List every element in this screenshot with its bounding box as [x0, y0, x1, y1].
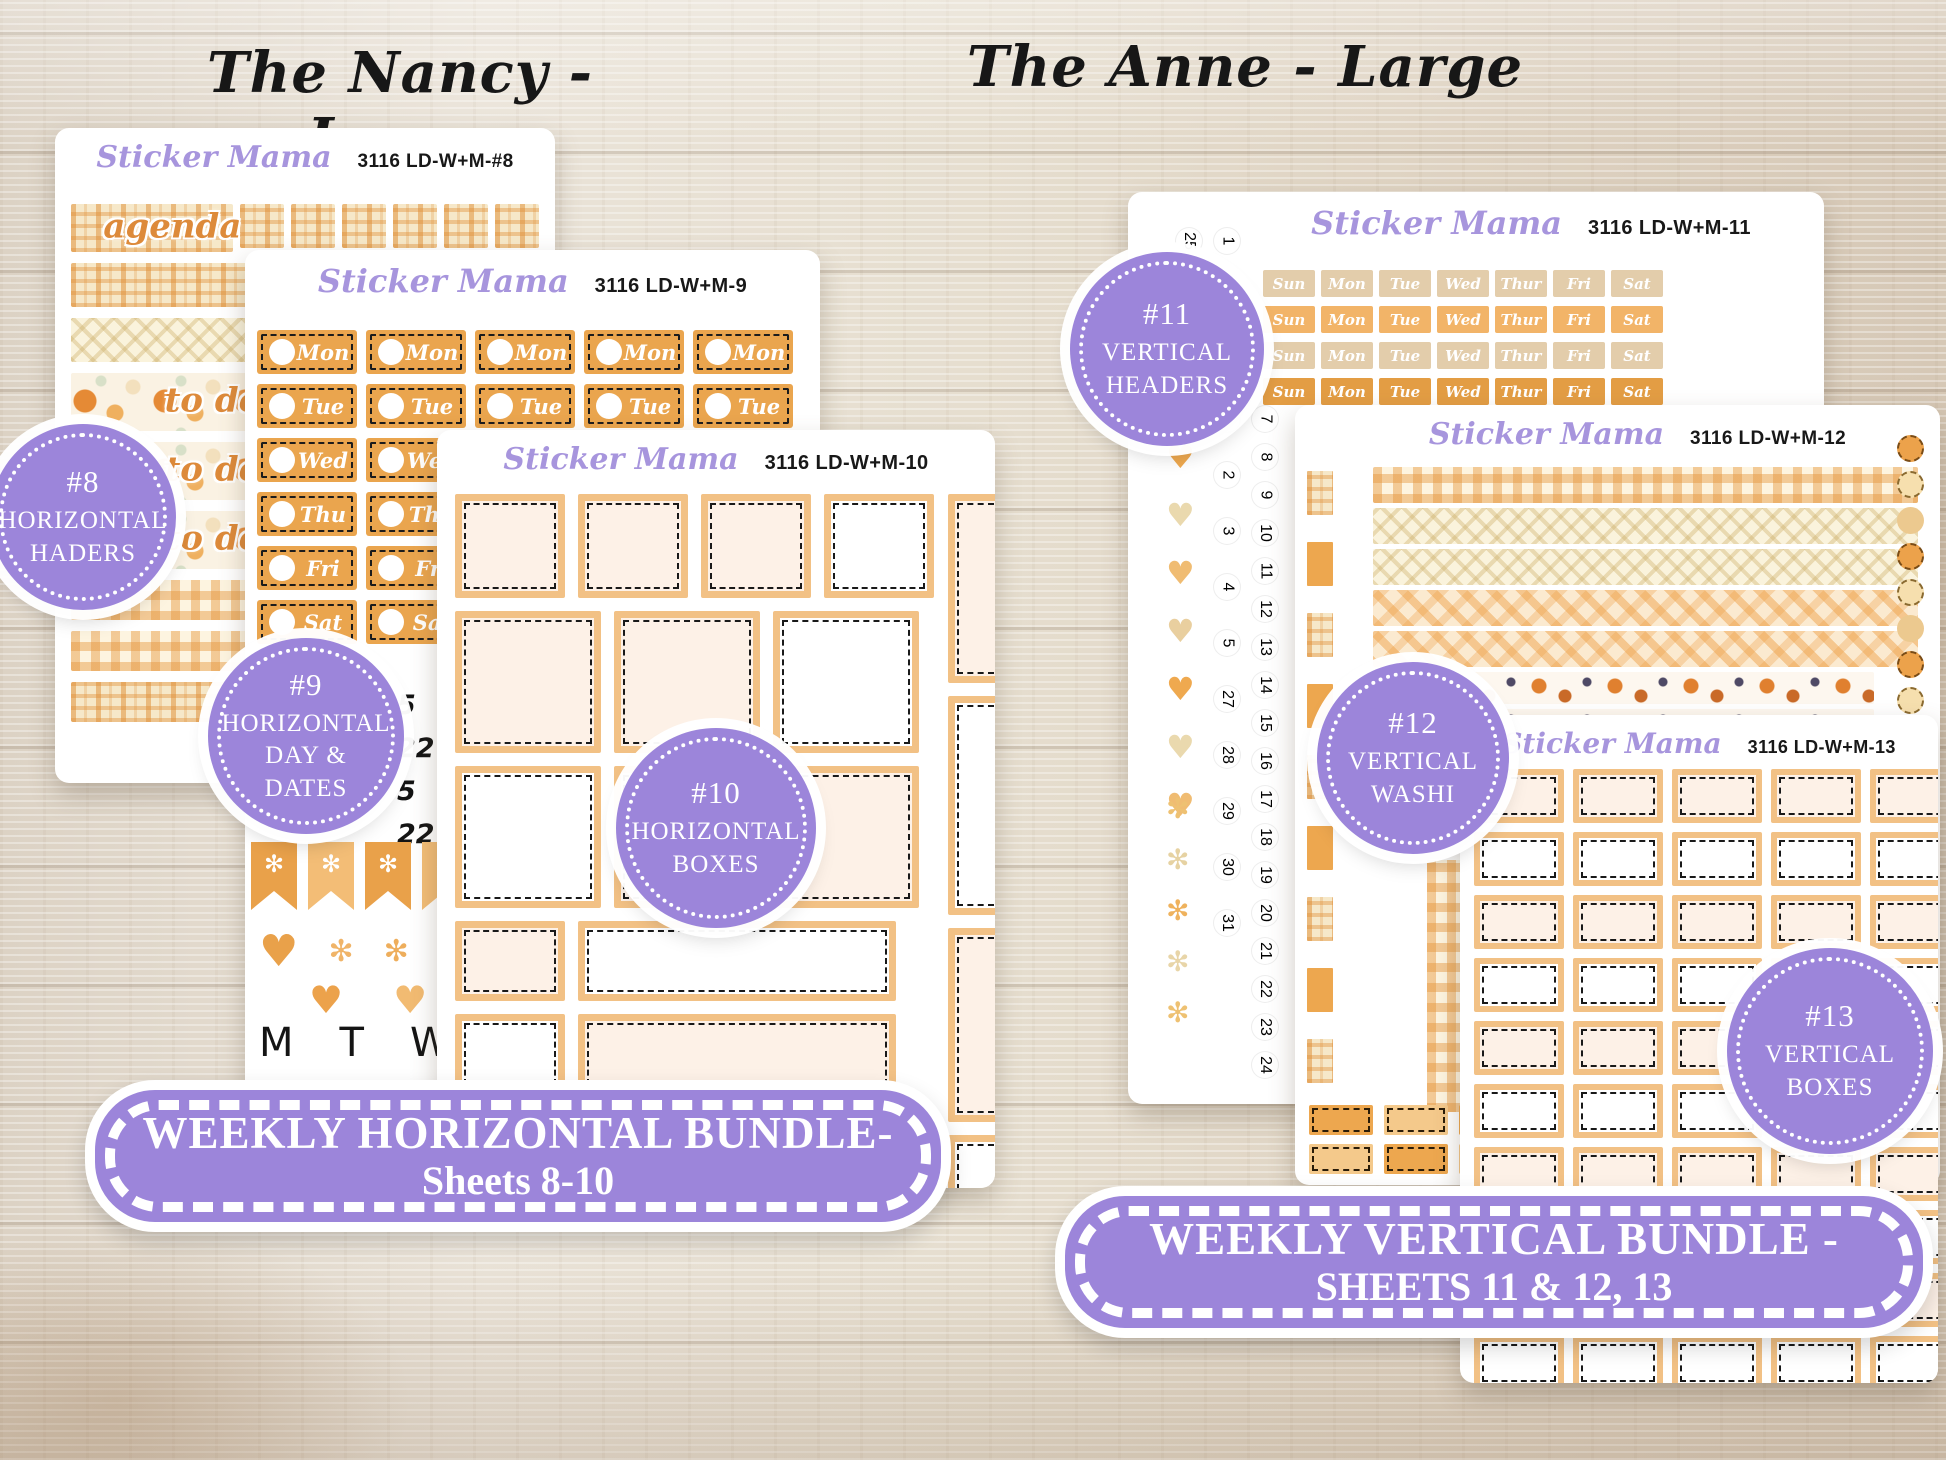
- day-label: Tue: [513, 394, 575, 419]
- planner-box: [578, 921, 896, 1001]
- date-number: 22: [1256, 980, 1274, 998]
- date-dot: 23: [1252, 1014, 1278, 1040]
- badge-13-vertical-boxes: #13 VERTICAL BOXES: [1727, 948, 1933, 1154]
- banner-subtitle: Sheets 8-10: [143, 1159, 894, 1204]
- flower-sticker-column: ✻✻✻✻✻: [1166, 792, 1189, 1029]
- date-number: 12: [1256, 600, 1274, 618]
- sheet-code: 3116 LD-W+M-10: [765, 452, 929, 475]
- banner-weekly-vertical-bundle: WEEKLY VERTICAL BUNDLE - SHEETS 11 & 12,…: [1055, 1186, 1933, 1338]
- decor-circle: [596, 339, 622, 365]
- day-tag: Tue: [475, 384, 575, 428]
- heart-icon: ♥: [259, 926, 298, 977]
- planner-box: [1573, 832, 1663, 886]
- weekday-letter: M: [259, 1020, 294, 1066]
- pennant-flag: ✻: [365, 842, 411, 910]
- planner-box: [1474, 832, 1564, 886]
- decor-circle: [705, 339, 731, 365]
- day-header-tag: Wed: [1437, 378, 1489, 405]
- planner-box: [455, 494, 565, 598]
- planner-box: [1573, 895, 1663, 949]
- washi-strip: [1373, 508, 1918, 544]
- sheet-code: 3116 LD-W+M-9: [595, 275, 747, 298]
- day-header-tag: Thur: [1495, 378, 1547, 405]
- day-header-tag: Sat: [1611, 378, 1663, 405]
- day-tag: Thu: [257, 492, 357, 536]
- decor-circle: [269, 393, 295, 419]
- box-row: [1474, 1336, 1938, 1383]
- collection-title-right: The Anne - Large: [955, 34, 1535, 100]
- badge-12-vertical-washi: #12 VERTICAL WASHI: [1317, 662, 1509, 854]
- day-header-tag: Tue: [1379, 342, 1431, 369]
- cookie-sticker: [1897, 687, 1924, 714]
- decor-circle: [487, 393, 513, 419]
- heart-icon: ♥: [1166, 496, 1195, 534]
- heart-flower-stickers: ♥✻✻✻: [259, 926, 464, 977]
- date-dot: 15: [1252, 710, 1278, 736]
- date-number: 2: [1218, 471, 1236, 480]
- date-dot: 10: [1252, 520, 1278, 546]
- planner-box: [1474, 895, 1564, 949]
- day-label: Mon: [513, 340, 575, 365]
- badge-number: #12: [1388, 705, 1438, 741]
- badge-label: VERTICAL: [1348, 746, 1478, 779]
- decor-circle: [596, 393, 622, 419]
- date-dot: 19: [1252, 862, 1278, 888]
- date-number: 29: [1218, 802, 1236, 820]
- date-number: 19: [1256, 866, 1274, 884]
- planner-box: [1474, 1021, 1564, 1075]
- date-number: 28: [1218, 746, 1236, 764]
- day-header-tag: Sun: [1263, 270, 1315, 297]
- planner-box: [1573, 769, 1663, 823]
- day-header-tag: Sat: [1611, 270, 1663, 297]
- date-number: 15: [1256, 714, 1274, 732]
- sheet-code: 3116 LD-W+M-#8: [358, 151, 514, 173]
- washi-sample: [1307, 968, 1333, 1012]
- heart-icon: ♥: [1166, 670, 1195, 708]
- planner-box: [1870, 769, 1938, 823]
- date-dot: 11: [1252, 558, 1278, 584]
- washi-square: [444, 204, 488, 248]
- date-dot: 31: [1214, 910, 1240, 936]
- flower-icon: ✻: [1166, 843, 1189, 876]
- date-number: 21: [1256, 942, 1274, 960]
- heart-icon: ♥: [1166, 728, 1195, 766]
- planner-box: [773, 611, 919, 753]
- vertical-day-header-grid: SunMonTueWedThurFriSatSunMonTueWedThurFr…: [1263, 270, 1663, 405]
- day-header-tag: Fri: [1553, 270, 1605, 297]
- washi-strip: [1373, 631, 1918, 667]
- date-number: 10: [1256, 524, 1274, 542]
- planner-box: [1474, 958, 1564, 1012]
- day-tag: Mon: [257, 330, 357, 374]
- date-dot: 16: [1252, 748, 1278, 774]
- planner-box: [1573, 1084, 1663, 1138]
- flower-icon: ✻: [328, 934, 353, 969]
- washi-square: [291, 204, 335, 248]
- brand-logo: Sticker Mama: [318, 262, 569, 300]
- cookie-sticker: [1897, 651, 1924, 678]
- date-number: 11: [1256, 563, 1274, 580]
- date-number: 24: [1256, 1056, 1274, 1074]
- badge-label: DATES: [265, 773, 348, 806]
- planner-box: [1474, 1084, 1564, 1138]
- badge-number: #13: [1805, 998, 1855, 1034]
- heart-icon: ♥: [309, 978, 343, 1022]
- date-number: 5: [397, 776, 435, 807]
- day-tag: Wed: [257, 438, 357, 482]
- planner-box: [1672, 832, 1762, 886]
- date-dot: 24: [1252, 1052, 1278, 1078]
- decor-circle: [705, 393, 731, 419]
- day-tag: Tue: [257, 384, 357, 428]
- badge-9-horizontal-day-dates: #9 HORIZONTAL DAY & DATES: [208, 638, 404, 834]
- day-header-tag: Tue: [1379, 270, 1431, 297]
- date-number: 17: [1256, 790, 1274, 808]
- washi-word-label: agenda: [103, 206, 241, 246]
- day-header-tag: Thur: [1495, 342, 1547, 369]
- badge-label: WASHI: [1371, 779, 1455, 812]
- date-number: 31: [1218, 914, 1236, 932]
- washi-strip: [1373, 590, 1918, 626]
- flower-icon: ✻: [1166, 792, 1189, 825]
- box-column: [948, 494, 995, 1188]
- heart-icon: ♥: [1166, 554, 1195, 592]
- date-number: 18: [1256, 828, 1274, 846]
- day-header-tag: Thur: [1495, 270, 1547, 297]
- day-label: Mon: [404, 340, 466, 365]
- sheet-code: 3116 LD-W+M-11: [1588, 217, 1751, 240]
- date-dot: 20: [1252, 900, 1278, 926]
- decor-circle: [269, 501, 295, 527]
- decor-circle: [378, 501, 404, 527]
- decor-circle: [378, 339, 404, 365]
- cookie-sticker: [1897, 543, 1924, 570]
- decor-circle: [378, 393, 404, 419]
- badge-label: DAY &: [265, 740, 347, 773]
- washi-square: [393, 204, 437, 248]
- badge-number: #8: [67, 464, 100, 500]
- box-row: [455, 494, 934, 598]
- cookie-sticker: [1897, 579, 1924, 606]
- cookie-sticker: [1897, 615, 1924, 642]
- brand-logo: Sticker Mama: [1311, 204, 1562, 242]
- planner-box: [1771, 1336, 1861, 1383]
- day-tag: Mon: [693, 330, 793, 374]
- date-dot: 28: [1214, 742, 1240, 768]
- decor-circle: [269, 339, 295, 365]
- day-header-row: SunMonTueWedThurFriSat: [1263, 306, 1663, 333]
- date-number: 9: [1256, 491, 1274, 500]
- date-number: 27: [1218, 690, 1236, 708]
- day-label: Mon: [295, 340, 357, 365]
- day-label: Wed: [295, 448, 357, 473]
- cookie-dot-column: [1897, 435, 1924, 714]
- planner-box: [948, 928, 995, 1122]
- brand-logo: Sticker Mama: [96, 140, 331, 175]
- badge-label: HORIZONTAL: [0, 505, 168, 538]
- day-header-tag: Sun: [1263, 378, 1315, 405]
- badge-11-vertical-headers: #11 VERTICAL HEADERS: [1070, 252, 1264, 446]
- planner-box: [1573, 1021, 1663, 1075]
- pennant-flag: ✻: [251, 842, 297, 910]
- planner-box: [948, 1135, 995, 1188]
- badge-label: BOXES: [1787, 1072, 1874, 1105]
- banner-subtitle: SHEETS 11 & 12, 13: [1149, 1265, 1839, 1310]
- day-header-tag: Tue: [1379, 306, 1431, 333]
- date-dot: 21: [1252, 938, 1278, 964]
- day-label: Sat: [295, 610, 357, 635]
- day-label: Tue: [404, 394, 466, 419]
- day-tag: Fri: [257, 546, 357, 590]
- planner-box: [1573, 1336, 1663, 1383]
- banner-title: WEEKLY VERTICAL BUNDLE -: [1149, 1214, 1839, 1264]
- box-row: [1474, 769, 1938, 823]
- mini-box: [1309, 1105, 1373, 1135]
- date-number: 7: [1256, 415, 1274, 424]
- flower-icon: ✻: [1166, 894, 1189, 927]
- date-number: 16: [1256, 752, 1274, 770]
- planner-box: [578, 494, 688, 598]
- planner-box: [455, 611, 601, 753]
- date-dot: 14: [1252, 672, 1278, 698]
- day-label: Mon: [622, 340, 684, 365]
- day-header-tag: Wed: [1437, 342, 1489, 369]
- washi-strip: [1373, 549, 1918, 585]
- day-tag: Mon: [584, 330, 684, 374]
- planner-box: [1672, 769, 1762, 823]
- flower-icon: ✻: [384, 934, 409, 969]
- day-header-row: SunMonTueWedThurFriSat: [1263, 378, 1663, 405]
- day-header-tag: Mon: [1321, 270, 1373, 297]
- planner-box: [701, 494, 811, 598]
- day-header-tag: Fri: [1553, 378, 1605, 405]
- washi-sample: [1307, 897, 1333, 941]
- flower-icon: ✻: [1166, 945, 1189, 978]
- flower-icon: ✻: [1166, 996, 1189, 1029]
- planner-box: [1870, 1336, 1938, 1383]
- date-dot: 18: [1252, 824, 1278, 850]
- washi-sample: [1307, 1039, 1333, 1083]
- badge-number: #10: [691, 775, 741, 811]
- badge-label: HADERS: [30, 538, 136, 571]
- planner-box: [1573, 958, 1663, 1012]
- date-number: 23: [1256, 1018, 1274, 1036]
- box-row: [1474, 895, 1938, 949]
- planner-box: [455, 921, 565, 1001]
- day-label: Thu: [295, 502, 357, 527]
- day-row: MonMonMonMonMon: [257, 330, 793, 374]
- washi-strip: [1373, 467, 1918, 503]
- decor-circle: [487, 339, 513, 365]
- day-label: Tue: [731, 394, 793, 419]
- day-label: Fri: [295, 556, 357, 581]
- badge-label: HEADERS: [1106, 370, 1228, 403]
- day-header-tag: Mon: [1321, 378, 1373, 405]
- date-dot: 5: [1214, 630, 1240, 656]
- day-header-tag: Wed: [1437, 270, 1489, 297]
- date-number: 4: [1218, 583, 1236, 592]
- decor-circle: [269, 609, 295, 635]
- day-label: Tue: [622, 394, 684, 419]
- planner-box: [1771, 832, 1861, 886]
- date-dot: 13: [1252, 634, 1278, 660]
- date-number: 3: [1218, 527, 1236, 536]
- date-dot: 9: [1252, 482, 1278, 508]
- planner-box: [455, 766, 601, 908]
- washi-sample: [1307, 542, 1333, 586]
- badge-label: BOXES: [673, 849, 760, 882]
- day-header-tag: Sat: [1611, 342, 1663, 369]
- date-dot: 29: [1214, 798, 1240, 824]
- cookie-sticker: [1897, 471, 1924, 498]
- day-header-tag: Mon: [1321, 342, 1373, 369]
- day-label: Mon: [731, 340, 793, 365]
- planner-box: [1672, 895, 1762, 949]
- day-tag: Tue: [693, 384, 793, 428]
- date-dot-column: 789101112131415161718192021222324: [1252, 406, 1278, 1078]
- planner-box: [824, 494, 934, 598]
- day-tag: Tue: [584, 384, 684, 428]
- brand-logo: Sticker Mama: [503, 442, 738, 477]
- date-dot: 2: [1214, 462, 1240, 488]
- heart-icon: ♥: [1166, 612, 1195, 650]
- day-tag: Mon: [475, 330, 575, 374]
- weekday-letter: T: [340, 1020, 364, 1066]
- brand-logo: Sticker Mama: [1429, 417, 1664, 452]
- date-dot: 30: [1214, 854, 1240, 880]
- day-header-tag: Fri: [1553, 306, 1605, 333]
- box-row: [1474, 832, 1938, 886]
- heart-sticker-column: ♥♥♥♥♥♥♥: [1166, 438, 1195, 824]
- day-label: Tue: [295, 394, 357, 419]
- date-dot: 8: [1252, 444, 1278, 470]
- decor-circle: [378, 609, 404, 635]
- badge-10-horizontal-boxes: #10 HORIZONTAL BOXES: [616, 728, 816, 928]
- day-header-tag: Thur: [1495, 306, 1547, 333]
- planner-box: [1870, 832, 1938, 886]
- date-dot: 3: [1214, 518, 1240, 544]
- pennant-flag: ✻: [308, 842, 354, 910]
- date-number-column: 522522: [397, 690, 435, 850]
- date-dot: 12: [1252, 596, 1278, 622]
- day-tag: Mon: [366, 330, 466, 374]
- date-number: 14: [1256, 676, 1274, 694]
- pennant-flag-stickers: ✻✻✻✻: [251, 842, 468, 910]
- planner-box: [1771, 895, 1861, 949]
- decor-circle: [378, 555, 404, 581]
- day-header-row: SunMonTueWedThurFriSat: [1263, 270, 1663, 297]
- date-dot: 17: [1252, 786, 1278, 812]
- banner-title: WEEKLY HORIZONTAL BUNDLE-: [143, 1108, 894, 1158]
- badge-label: HORIZONTAL: [221, 708, 390, 741]
- sheet-code: 3116 LD-W+M-13: [1748, 737, 1896, 758]
- box-row: [455, 921, 934, 1001]
- day-header-tag: Sat: [1611, 306, 1663, 333]
- badge-label: VERTICAL: [1765, 1039, 1895, 1072]
- date-number: 30: [1218, 858, 1236, 876]
- heart-icon: ♥: [393, 978, 427, 1022]
- planner-box: [1771, 769, 1861, 823]
- date-number: 5: [1218, 639, 1236, 648]
- badge-number: #9: [290, 667, 323, 703]
- date-dot: 22: [1252, 976, 1278, 1002]
- planner-box: [948, 696, 995, 915]
- washi-square: [342, 204, 386, 248]
- date-number: 20: [1256, 904, 1274, 922]
- planner-box: [1870, 895, 1938, 949]
- day-tag: Tue: [366, 384, 466, 428]
- day-header-row: SunMonTueWedThurFriSat: [1263, 342, 1663, 369]
- mini-box: [1384, 1144, 1448, 1174]
- washi-strip: agenda: [71, 204, 233, 252]
- washi-row: agenda: [71, 204, 539, 252]
- banner-weekly-horizontal-bundle: WEEKLY HORIZONTAL BUNDLE- Sheets 8-10: [85, 1080, 951, 1232]
- sheet-code: 3116 LD-W+M-12: [1690, 428, 1846, 450]
- decor-circle: [269, 447, 295, 473]
- date-number: 8: [1256, 453, 1274, 462]
- planner-box: [1474, 1336, 1564, 1383]
- decor-circle: [269, 555, 295, 581]
- washi-square: [495, 204, 539, 248]
- washi-square: [240, 204, 284, 248]
- date-dot: 4: [1214, 574, 1240, 600]
- day-header-tag: Tue: [1379, 378, 1431, 405]
- day-header-tag: Mon: [1321, 306, 1373, 333]
- date-dot: 27: [1214, 686, 1240, 712]
- washi-sample: [1307, 826, 1333, 870]
- day-header-tag: Sun: [1263, 342, 1315, 369]
- badge-label: HORIZONTAL: [631, 816, 800, 849]
- day-header-tag: Fri: [1553, 342, 1605, 369]
- badge-number: #11: [1143, 296, 1191, 332]
- planner-box: [1672, 1336, 1762, 1383]
- date-number: 13: [1256, 638, 1274, 656]
- mini-box: [1309, 1144, 1373, 1174]
- decor-circle: [378, 447, 404, 473]
- badge-label: VERTICAL: [1102, 337, 1232, 370]
- washi-sample: [1307, 613, 1333, 657]
- date-dot: 7: [1252, 406, 1278, 432]
- mini-box: [1384, 1105, 1448, 1135]
- date-dot-column: 123452728293031: [1214, 406, 1240, 936]
- brand-logo: Sticker Mama: [1502, 727, 1721, 760]
- cookie-sticker: [1897, 507, 1924, 534]
- day-header-tag: Sun: [1263, 306, 1315, 333]
- washi-sample: [1307, 471, 1333, 515]
- day-row: TueTueTueTueTue: [257, 384, 793, 428]
- day-header-tag: Wed: [1437, 306, 1489, 333]
- planner-box: [948, 494, 995, 683]
- product-collage: The Nancy - Large The Anne - Large Stick…: [0, 0, 1946, 1460]
- date-number: 5: [397, 690, 435, 721]
